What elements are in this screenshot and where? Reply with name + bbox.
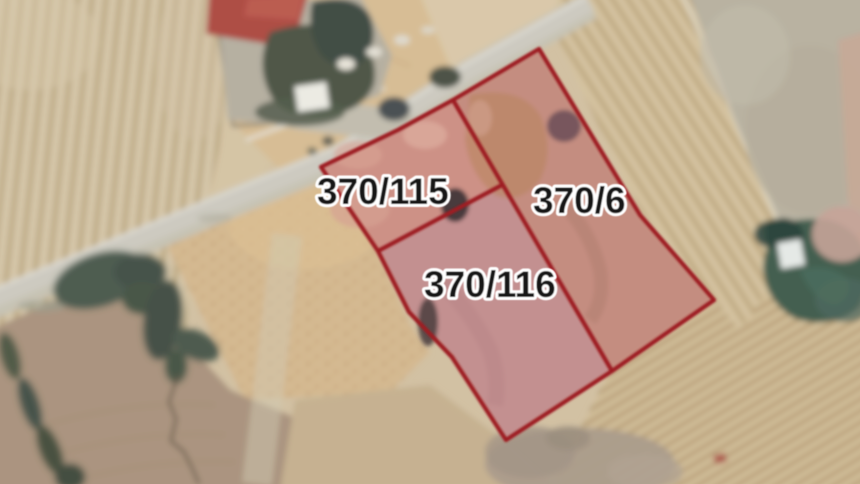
- svg-text:370/115: 370/115: [317, 171, 449, 212]
- svg-text:370/6: 370/6: [533, 180, 626, 221]
- svg-text:370/116: 370/116: [424, 264, 556, 305]
